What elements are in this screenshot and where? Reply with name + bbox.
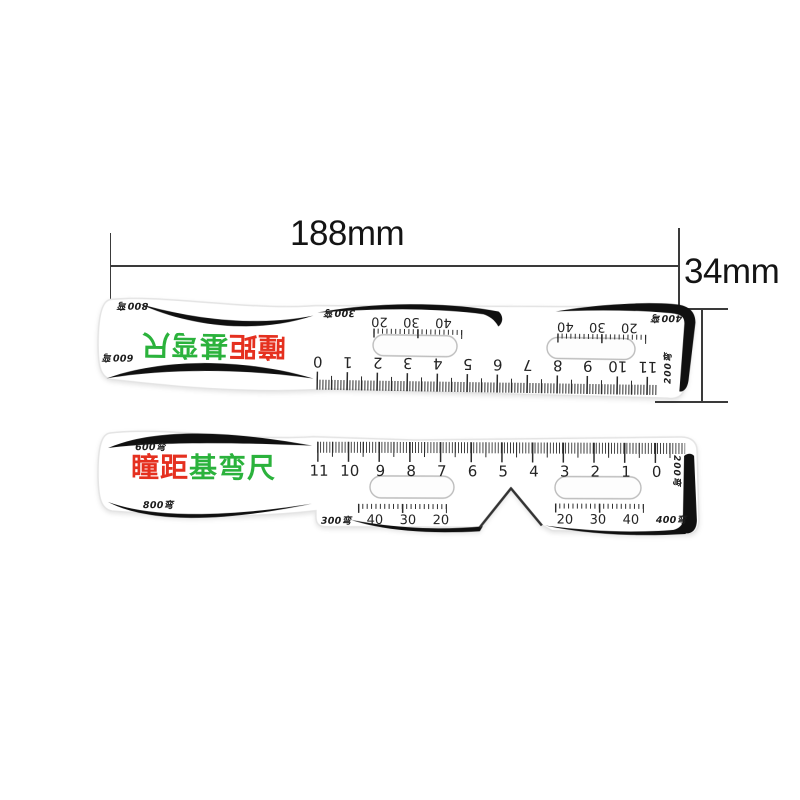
right-eye-scale-ticks	[557, 333, 646, 343]
scale-number: 1	[621, 463, 631, 481]
scale-number: 40	[435, 315, 452, 330]
height-dimension-label: 34mm	[684, 252, 779, 292]
scale-number: 10	[608, 357, 627, 375]
curve-label-400: 400弯	[656, 512, 687, 526]
left-eye-scale-ticks	[358, 504, 447, 513]
scale-number: 0	[652, 463, 662, 481]
scale-number: 1	[343, 353, 353, 371]
scale-number: 8	[553, 356, 563, 374]
ruler-title: 瞳距基弯尺	[131, 452, 276, 485]
width-dimension-label: 188mm	[290, 214, 404, 254]
curve-label-300: 300弯	[321, 513, 352, 527]
scale-number: 7	[437, 462, 447, 480]
curve-label-800: 800弯	[118, 300, 149, 314]
scale-number: 9	[583, 357, 593, 375]
curve-label-400: 400弯	[651, 312, 682, 326]
scale-number: 6	[468, 462, 478, 480]
pd-ruler-front: 600弯 800弯 瞳距基弯尺 11109876543210 300弯 4030…	[95, 423, 707, 541]
scale-number: 3	[403, 354, 413, 372]
scale-number: 11	[638, 358, 657, 376]
curve-label-200: 200弯	[660, 352, 673, 384]
curve-label-200: 200弯	[671, 455, 684, 487]
scale-number: 4	[529, 462, 539, 480]
scale-number: 7	[523, 356, 533, 374]
scale-number: 20	[557, 513, 574, 528]
main-scale-ticks	[317, 442, 685, 463]
width-dimension-line	[110, 265, 679, 267]
scale-number: 8	[406, 462, 416, 480]
scale-number: 20	[371, 314, 388, 329]
scale-number: 5	[463, 355, 473, 373]
title-pd: 瞳距	[131, 451, 189, 484]
scale-number: 30	[589, 319, 606, 334]
curve-label-800: 800弯	[143, 497, 174, 511]
scale-number: 40	[623, 513, 640, 528]
scale-number: 20	[621, 319, 638, 334]
scale-number: 10	[340, 462, 359, 480]
scale-number: 5	[498, 462, 508, 480]
ruler-title: 瞳距基弯尺	[141, 328, 287, 362]
curve-label-600: 600弯	[103, 351, 134, 365]
title-pd: 瞳距	[228, 329, 287, 363]
scale-number: 30	[400, 513, 417, 528]
pd-ruler-back: 800弯 600弯 瞳距基弯尺 300弯 400弯 200弯 203040 40…	[94, 287, 708, 409]
scale-number: 30	[403, 314, 420, 329]
scale-number: 30	[590, 513, 607, 528]
product-photo: 188mm 34mm 800弯 600弯 瞳距基弯尺 300弯 400弯 200…	[0, 0, 800, 800]
curve-label-300: 300弯	[324, 307, 355, 321]
scale-number: 40	[557, 318, 574, 333]
scale-number: 20	[433, 513, 450, 528]
scale-number: 11	[309, 462, 328, 480]
scale-number: 4	[433, 355, 443, 373]
scale-number: 2	[373, 354, 383, 372]
scale-number: 40	[367, 513, 384, 528]
scale-number: 3	[560, 463, 570, 481]
title-base-curve: 基弯尺	[141, 328, 229, 362]
left-eye-scale-ticks	[373, 329, 462, 339]
right-eye-scale-ticks	[555, 504, 644, 513]
scale-number: 9	[376, 462, 386, 480]
scale-number: 2	[591, 463, 601, 481]
title-base-curve: 基弯尺	[189, 451, 276, 484]
scale-number: 6	[493, 355, 503, 373]
scale-number: 0	[313, 353, 323, 371]
